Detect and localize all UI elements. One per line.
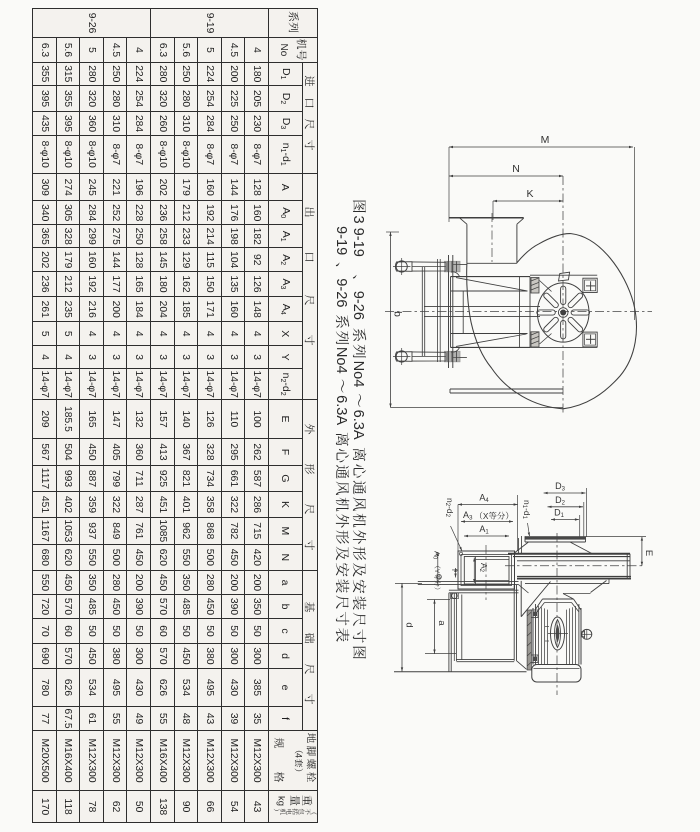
svg-text:Y: Y bbox=[433, 569, 440, 574]
svg-text:a: a bbox=[436, 620, 447, 626]
svg-text:n1-d1: n1-d1 bbox=[521, 500, 532, 520]
svg-text:A4: A4 bbox=[479, 493, 489, 505]
svg-text:M: M bbox=[541, 134, 550, 146]
svg-text:A1: A1 bbox=[479, 524, 489, 536]
svg-text:D3: D3 bbox=[555, 481, 566, 493]
svg-text:D1: D1 bbox=[554, 508, 565, 520]
svg-text:A3: A3 bbox=[463, 510, 473, 522]
svg-text:K: K bbox=[526, 188, 533, 200]
svg-text:N: N bbox=[512, 163, 520, 175]
svg-text:b: b bbox=[392, 311, 403, 317]
svg-text:d: d bbox=[404, 622, 415, 627]
svg-text:A0: A0 bbox=[432, 551, 442, 559]
svg-text:A2: A2 bbox=[478, 563, 489, 573]
svg-text:n2-d2: n2-d2 bbox=[444, 498, 455, 518]
svg-text:X: X bbox=[483, 511, 489, 521]
svg-text:D2: D2 bbox=[555, 495, 566, 507]
svg-text:E: E bbox=[643, 550, 654, 556]
